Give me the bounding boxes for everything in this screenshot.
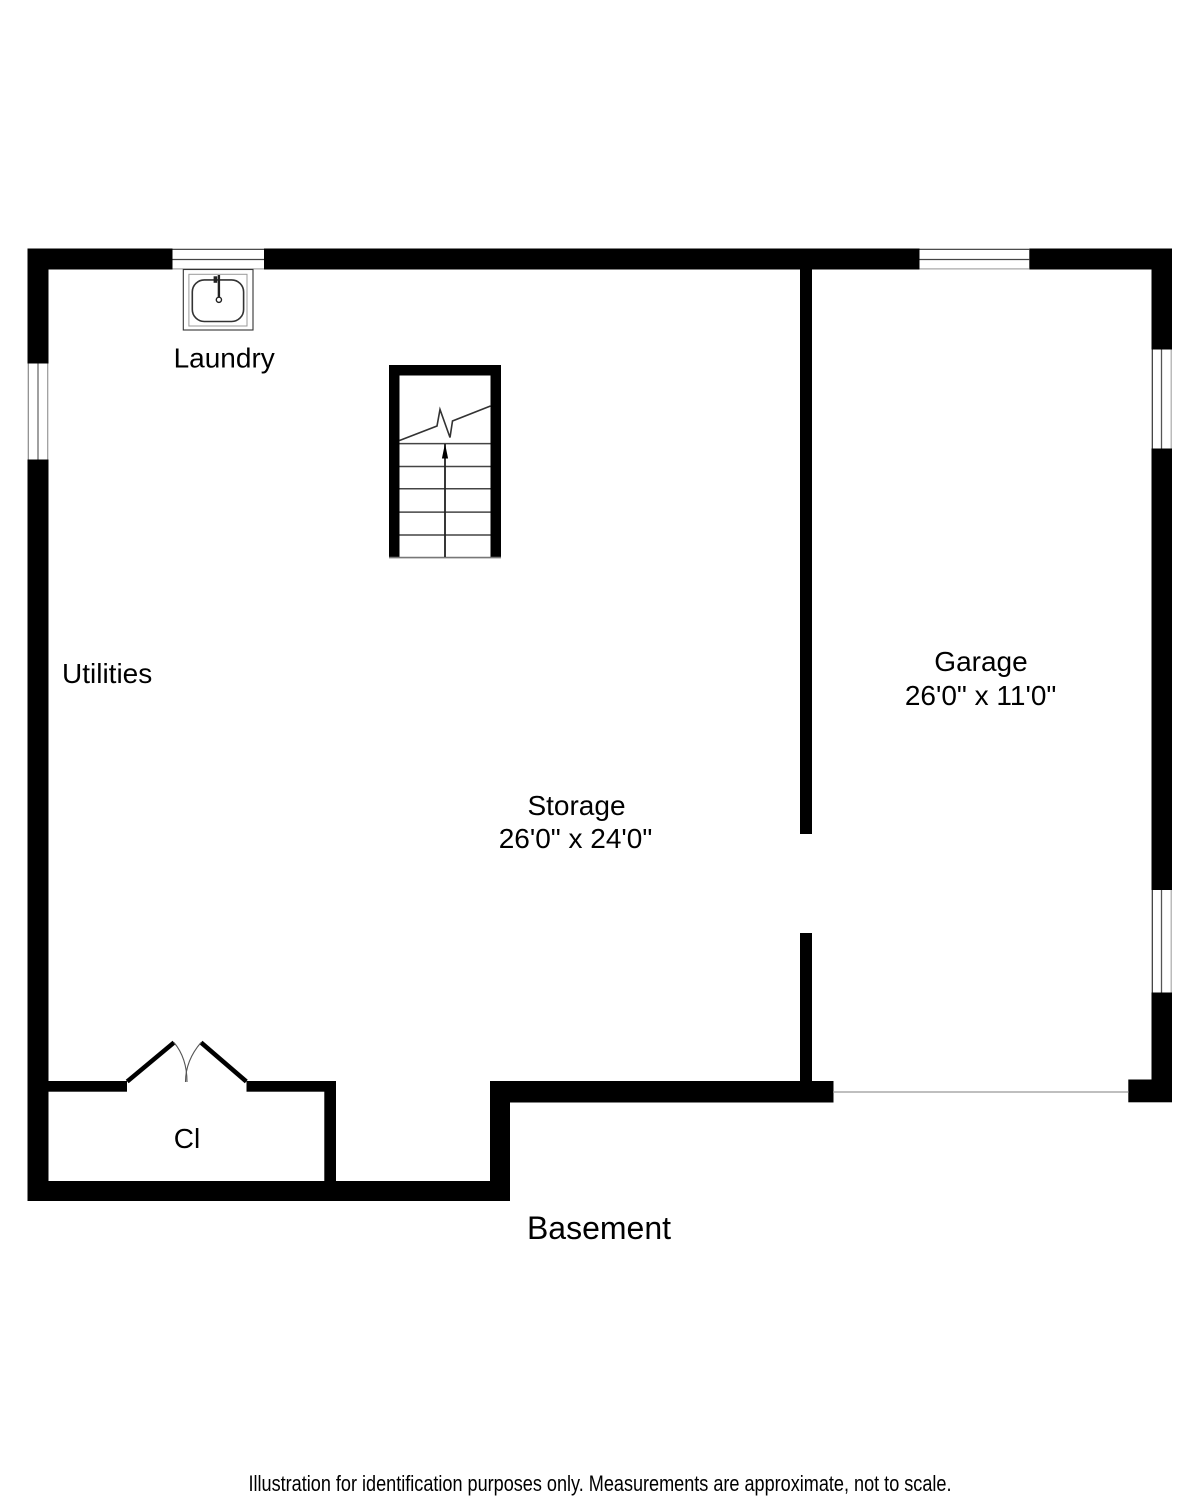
svg-text:26'0" x 11'0": 26'0" x 11'0"	[905, 680, 1056, 711]
svg-text:Garage: Garage	[934, 646, 1027, 677]
svg-text:Basement: Basement	[527, 1210, 671, 1246]
svg-text:Cl: Cl	[174, 1123, 200, 1154]
svg-text:26'0" x 24'0": 26'0" x 24'0"	[499, 823, 653, 854]
svg-text:Laundry: Laundry	[174, 343, 275, 374]
svg-text:Illustration for identificatio: Illustration for identification purposes…	[249, 1471, 952, 1496]
svg-text:Utilities: Utilities	[62, 658, 152, 689]
svg-text:Storage: Storage	[527, 790, 625, 821]
